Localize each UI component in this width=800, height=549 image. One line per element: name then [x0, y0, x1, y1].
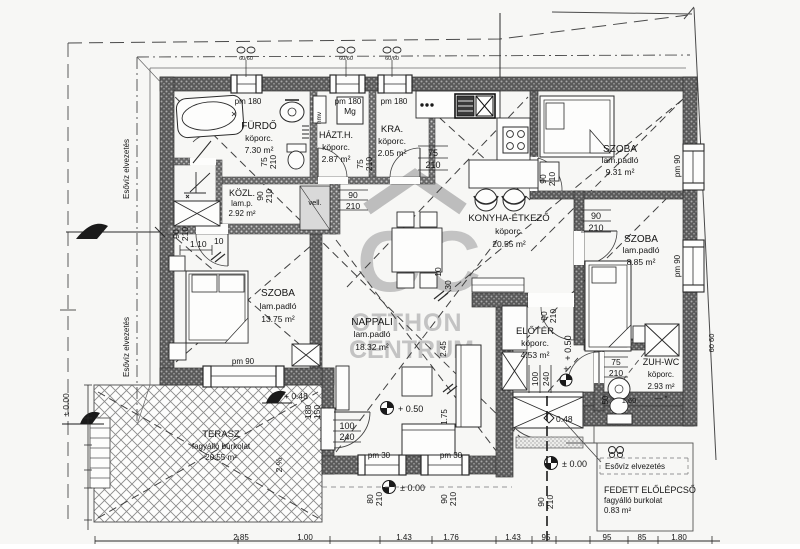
- svg-text:pm 90: pm 90: [232, 357, 255, 366]
- svg-text:210: 210: [547, 172, 557, 186]
- svg-text:lam.padló: lam.padló: [623, 245, 660, 255]
- svg-text:210: 210: [268, 155, 278, 169]
- svg-text:lam.p.: lam.p.: [231, 199, 253, 208]
- svg-text:2 %: 2 %: [274, 457, 284, 472]
- svg-text:50: 50: [601, 395, 610, 404]
- svg-text:+ 0.48: + 0.48: [284, 391, 308, 401]
- svg-text:150: 150: [312, 405, 322, 419]
- svg-text:100: 100: [530, 372, 540, 386]
- svg-text:KÖZL.: KÖZL.: [229, 188, 255, 198]
- svg-text:Esővíz elvezetés: Esővíz elvezetés: [605, 462, 665, 471]
- svg-text:ELŐTÉR: ELŐTÉR: [516, 326, 554, 337]
- svg-text:75: 75: [611, 357, 621, 367]
- svg-text:2.93 m²: 2.93 m²: [647, 382, 674, 391]
- svg-text:18.32 m²: 18.32 m²: [355, 342, 389, 352]
- svg-text:fagyálló burkolat: fagyálló burkolat: [604, 496, 663, 505]
- svg-text:SZOBA: SZOBA: [624, 234, 658, 245]
- svg-text:85: 85: [638, 533, 647, 542]
- svg-text:KONYHA-ÉTKEZŐ: KONYHA-ÉTKEZŐ: [468, 213, 549, 224]
- svg-text:1.80: 1.80: [671, 533, 687, 542]
- svg-text:1.75: 1.75: [440, 409, 449, 425]
- svg-text:90: 90: [591, 211, 601, 221]
- svg-text:FÜRDŐ: FÜRDŐ: [241, 118, 277, 132]
- svg-text:pm 180: pm 180: [235, 97, 262, 106]
- svg-text:1.76: 1.76: [443, 533, 459, 542]
- svg-text:2.05 m²: 2.05 m²: [378, 148, 407, 158]
- svg-text:1.43: 1.43: [505, 533, 521, 542]
- svg-text:SZOBA: SZOBA: [603, 144, 637, 155]
- svg-text:± 0.00: ± 0.00: [61, 393, 71, 417]
- svg-text:ZUH-WC: ZUH-WC: [643, 357, 680, 367]
- svg-text:90: 90: [348, 190, 358, 200]
- svg-text:lam.padló: lam.padló: [260, 301, 297, 311]
- svg-text:75: 75: [428, 148, 438, 158]
- svg-text:2.92 m²: 2.92 m²: [228, 209, 255, 218]
- svg-text:2.87 m²: 2.87 m²: [322, 154, 351, 164]
- svg-text:2.85: 2.85: [233, 533, 249, 542]
- svg-text:8.85 m²: 8.85 m²: [627, 257, 656, 267]
- svg-text:HÁZT.H.: HÁZT.H.: [319, 130, 353, 140]
- svg-text:210: 210: [448, 492, 458, 506]
- svg-text:13.75 m²: 13.75 m²: [261, 314, 295, 324]
- svg-text:KRA.: KRA.: [381, 124, 403, 135]
- svg-text:köporc.: köporc.: [245, 133, 273, 143]
- svg-text:Esővíz elvezetés: Esővíz elvezetés: [122, 139, 131, 199]
- svg-text:10: 10: [214, 236, 224, 246]
- svg-text:köporc.: köporc.: [322, 142, 350, 152]
- svg-text:210: 210: [588, 223, 603, 233]
- svg-text:210: 210: [374, 492, 384, 506]
- svg-text:lam.padló: lam.padló: [602, 155, 639, 165]
- svg-text:Mg: Mg: [344, 106, 356, 116]
- svg-text:30: 30: [443, 280, 453, 290]
- svg-text:10: 10: [433, 267, 443, 277]
- svg-text:köporc.: köporc.: [495, 226, 523, 236]
- svg-text:vell.: vell.: [308, 198, 321, 207]
- svg-text:pm 180: pm 180: [381, 97, 408, 106]
- svg-text:1.60: 1.60: [622, 396, 637, 405]
- svg-text:240: 240: [339, 432, 354, 442]
- svg-text:95: 95: [542, 533, 551, 542]
- svg-text:210: 210: [609, 368, 623, 378]
- svg-text:köporc.: köporc.: [378, 136, 406, 146]
- svg-text:210: 210: [364, 157, 374, 171]
- svg-text:210: 210: [548, 309, 558, 323]
- svg-text:+ 0.50: + 0.50: [398, 404, 423, 414]
- svg-text:1.00: 1.00: [297, 533, 313, 542]
- svg-text:FEDETT ELŐLÉPCSŐ: FEDETT ELŐLÉPCSŐ: [604, 485, 696, 495]
- svg-text:Esővíz elvezetés: Esővíz elvezetés: [122, 317, 131, 377]
- svg-text:210: 210: [180, 227, 190, 241]
- svg-text:± 0.00: ± 0.00: [562, 459, 587, 469]
- svg-text:7.30 m²: 7.30 m²: [245, 145, 274, 155]
- svg-text:0.83 m²: 0.83 m²: [604, 506, 631, 515]
- svg-text:2.45: 2.45: [439, 341, 448, 357]
- svg-text:pm 90: pm 90: [673, 254, 682, 277]
- svg-text:fagyálló burkolat: fagyálló burkolat: [192, 442, 251, 451]
- svg-text:4.53 m²: 4.53 m²: [521, 350, 550, 360]
- svg-text:9.31 m²: 9.31 m²: [606, 167, 635, 177]
- svg-text:NAPPALI: NAPPALI: [351, 317, 393, 328]
- svg-text:SZOBA: SZOBA: [261, 288, 295, 299]
- svg-text:± 0.00: ± 0.00: [400, 483, 425, 493]
- svg-text:+: +: [563, 364, 568, 374]
- svg-text:240: 240: [541, 372, 551, 386]
- svg-text:+ 0.50: + 0.50: [563, 335, 573, 360]
- svg-text:1.43: 1.43: [396, 533, 412, 542]
- svg-text:0.48: 0.48: [556, 414, 573, 424]
- svg-text:100: 100: [339, 421, 354, 431]
- svg-text:pm 30: pm 30: [440, 451, 463, 460]
- svg-text:köporc.: köporc.: [521, 338, 549, 348]
- svg-text:pm 30: pm 30: [368, 451, 391, 460]
- svg-text:60 60: 60 60: [707, 334, 716, 353]
- svg-text:20.55 m²: 20.55 m²: [492, 239, 526, 249]
- svg-text:TERASZ: TERASZ: [202, 429, 240, 440]
- svg-text:hmv: hmv: [316, 111, 323, 124]
- svg-text:20.55 m²: 20.55 m²: [205, 453, 237, 462]
- svg-text:210: 210: [264, 189, 274, 203]
- svg-text:210: 210: [346, 201, 360, 211]
- svg-text:210: 210: [425, 160, 440, 170]
- svg-text:pm 90: pm 90: [673, 154, 682, 177]
- svg-text:köporc.: köporc.: [648, 370, 674, 379]
- svg-text:1.10: 1.10: [190, 239, 207, 249]
- svg-text:pm 180: pm 180: [335, 97, 362, 106]
- svg-text:95: 95: [603, 533, 612, 542]
- svg-text:— *: — *: [654, 394, 667, 403]
- svg-text:lam.padló: lam.padló: [354, 329, 391, 339]
